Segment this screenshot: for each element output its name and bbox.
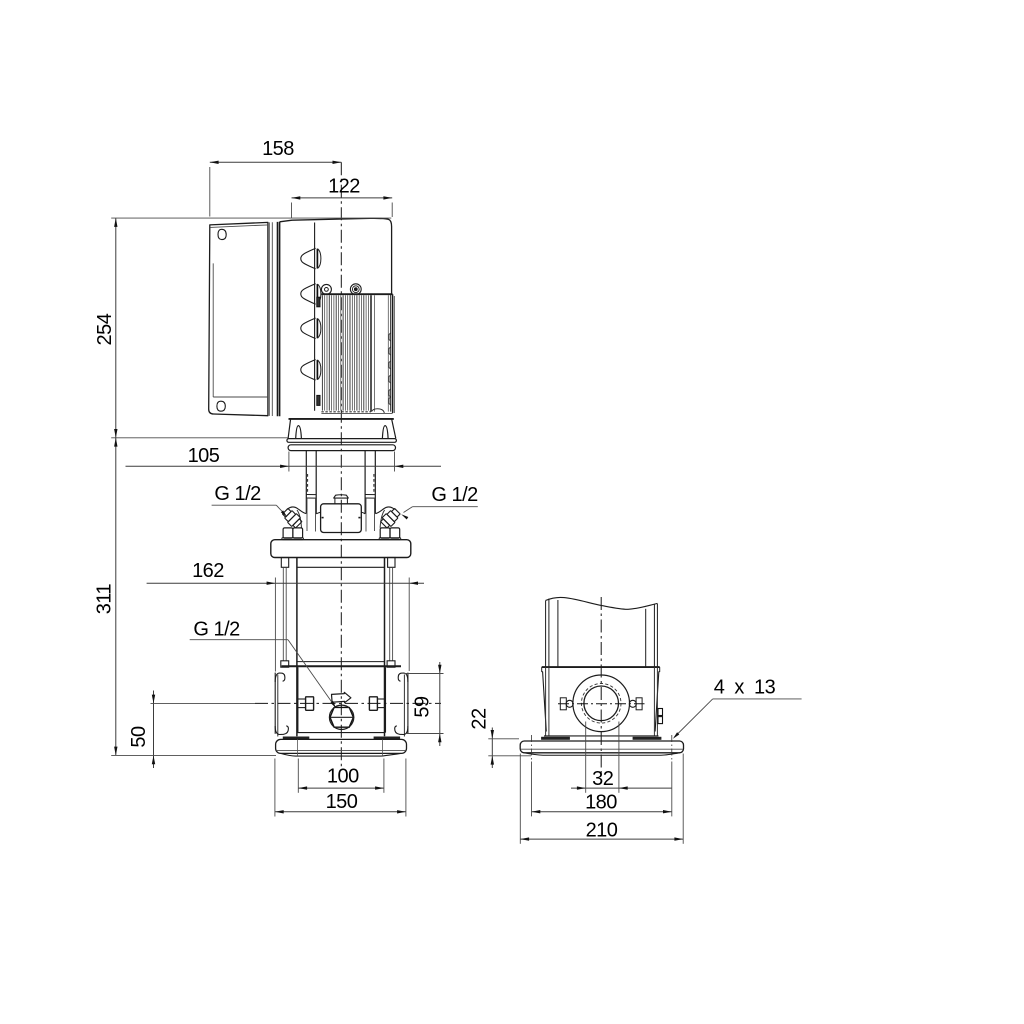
svg-text:50: 50 (128, 726, 150, 748)
svg-text:162: 162 (192, 560, 224, 582)
svg-text:4 x 13: 4 x 13 (714, 677, 776, 699)
svg-text:122: 122 (328, 176, 360, 198)
svg-text:G 1/2: G 1/2 (431, 484, 478, 506)
svg-text:254: 254 (94, 313, 116, 345)
svg-text:105: 105 (188, 445, 220, 467)
svg-text:180: 180 (585, 792, 617, 814)
svg-text:210: 210 (586, 820, 618, 842)
svg-text:158: 158 (262, 138, 294, 160)
svg-text:59: 59 (412, 696, 434, 718)
svg-text:100: 100 (327, 766, 359, 788)
svg-text:150: 150 (326, 791, 358, 813)
svg-text:311: 311 (94, 583, 116, 614)
svg-text:G 1/2: G 1/2 (214, 483, 261, 505)
svg-text:G 1/2: G 1/2 (193, 619, 240, 641)
svg-text:22: 22 (469, 708, 491, 730)
svg-text:32: 32 (592, 768, 614, 790)
